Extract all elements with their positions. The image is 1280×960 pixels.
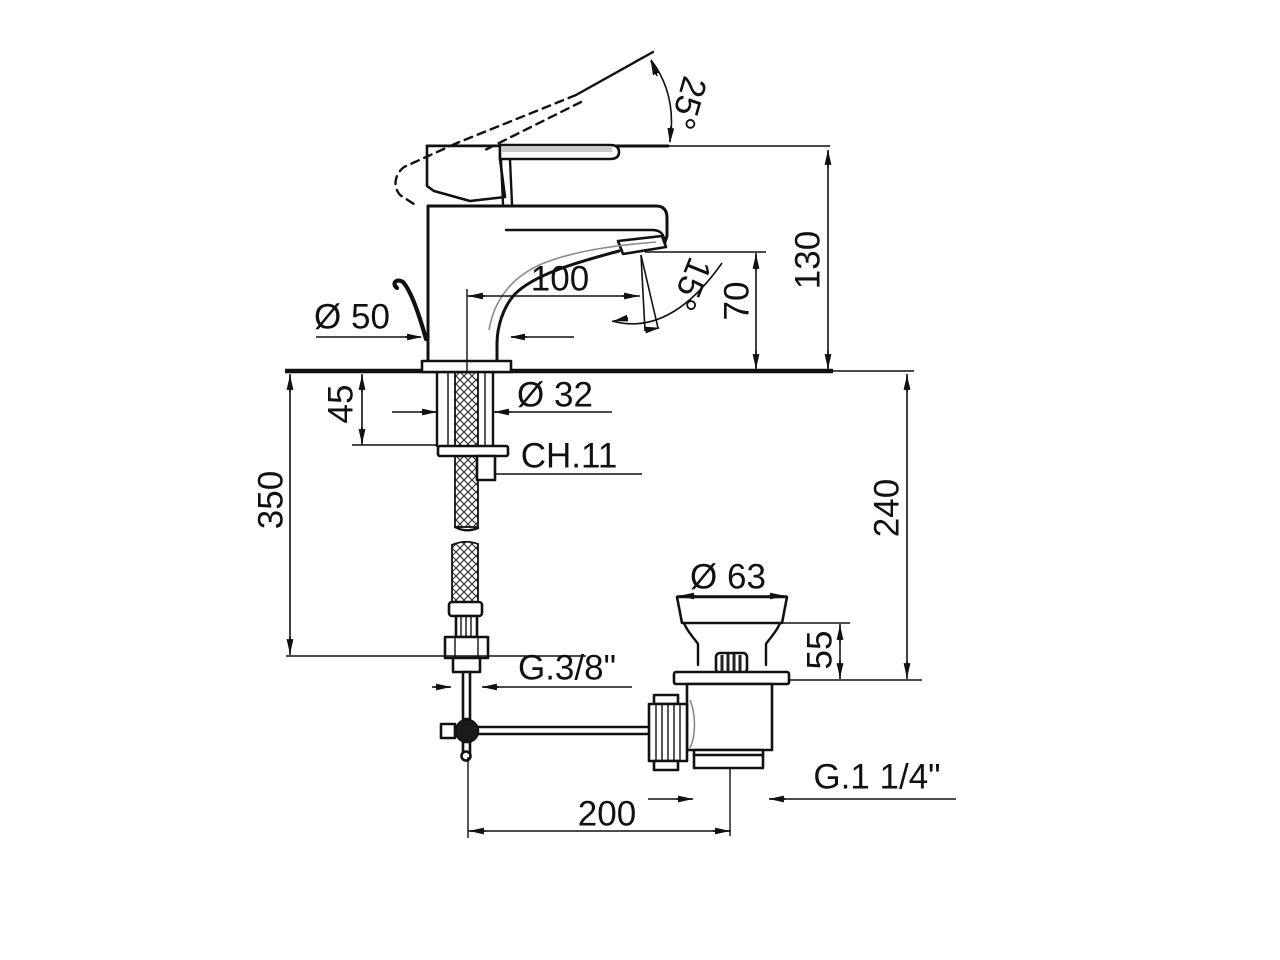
hose-hex-nut [445,637,488,658]
dim-label-aerator-angle: 15° [663,252,719,316]
dim-label-handle-angle: 25° [662,72,714,134]
gland-nut-bottom-step [654,761,678,770]
braided-hose-middle [455,456,478,527]
waste-cap-head [677,597,787,623]
rod-clamp-tab [441,724,455,738]
dim-label-waste-cap-height: 55 [801,631,840,670]
dim-wrench-size: CH.11 [496,437,642,476]
dim-label-waste-thread: G.1 1/4" [813,758,940,797]
waste-neck-right [766,623,780,665]
mounting-nut-step [477,456,495,480]
technical-drawing-canvas: 25° 130 100 15° [0,0,1280,960]
handle-body [427,146,505,201]
dim-hose-drop: 350 [252,374,587,656]
dim-rod-offset: 200 [468,757,731,838]
gland-nut-top-step [654,695,678,704]
dim-label-hose-drop: 350 [252,471,291,529]
basin-mixer-drawing: 25° 130 100 15° [0,0,1280,960]
dim-label-outlet-height: 70 [718,282,757,321]
hose-thread-nipple [453,658,480,672]
mounting-washer [438,446,508,456]
braided-hose-lower [452,542,478,602]
rod-ball-joint [456,720,479,743]
pop-up-rod-upper [463,672,470,719]
cartridge-neck-right [510,160,512,204]
dim-label-waste-cap-diameter: Ø 63 [690,558,766,597]
dim-aerator-angle: 15° [612,252,722,331]
faucet [395,52,830,372]
waste-neck-left [684,623,698,665]
dim-label-shank-diameter: Ø 32 [517,376,593,415]
dim-deck-thickness: 45 [322,374,439,445]
dim-label-height: 130 [789,231,828,289]
dim-label-wrench: CH.11 [521,437,618,476]
lever-highlight [502,147,612,152]
dimensions: 25° 130 100 15° [252,60,957,838]
waste-body [687,684,772,750]
raised-handle-tip-line [576,52,653,95]
dim-handle-angle: 25° [651,60,714,142]
dim-base-diameter: Ø 50 [314,298,574,338]
dim-label-below-deck: 240 [868,479,907,537]
waste-seat-flange [674,672,789,684]
waste-assembly [649,597,789,836]
rod-end-cap [462,752,471,761]
dim-label-base-diameter: Ø 50 [314,298,390,337]
dim-label-deck-thickness: 45 [322,385,361,424]
raised-handle-dashed-top [457,95,576,143]
dim-label-reach: 100 [531,260,589,299]
pop-up-control-rod-hook [395,281,426,339]
dim-label-supply-thread: G.3/8" [518,649,616,688]
dim-shank-diameter: Ø 32 [392,376,612,415]
spout-inner-edge [506,230,664,238]
dim-waste-cap-diameter: Ø 63 [677,558,787,597]
supply-hose-assembly [437,372,508,672]
dim-waste-cap-height: 55 [783,623,850,679]
braided-hose-upper [455,372,478,446]
hose-crimp-collar [449,602,482,616]
dim-label-rod-offset: 200 [578,795,636,834]
angle-arc-25 [651,60,671,141]
dim-height-130: 130 [789,150,829,369]
waste-tailpiece [694,750,763,768]
